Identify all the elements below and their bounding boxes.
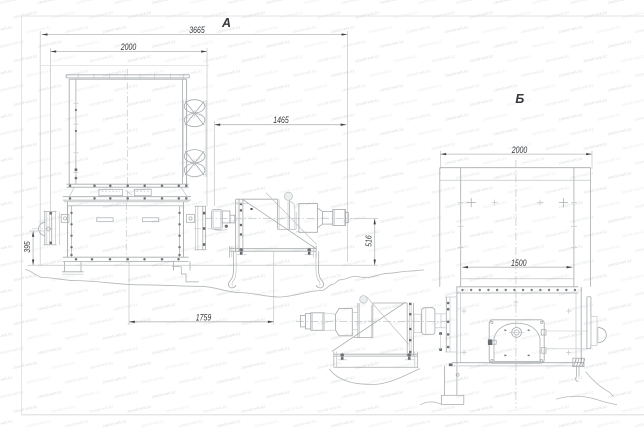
svg-text:516: 516 xyxy=(364,235,373,247)
svg-text:2000: 2000 xyxy=(120,42,136,52)
svg-text:3665: 3665 xyxy=(189,25,205,35)
svg-text:1500: 1500 xyxy=(511,258,527,268)
svg-text:1759: 1759 xyxy=(196,312,212,322)
svg-text:2000: 2000 xyxy=(511,145,527,155)
svg-text:А: А xyxy=(221,16,231,30)
svg-text:Б: Б xyxy=(515,92,524,106)
svg-text:395: 395 xyxy=(23,241,32,253)
svg-text:1465: 1465 xyxy=(273,115,289,125)
